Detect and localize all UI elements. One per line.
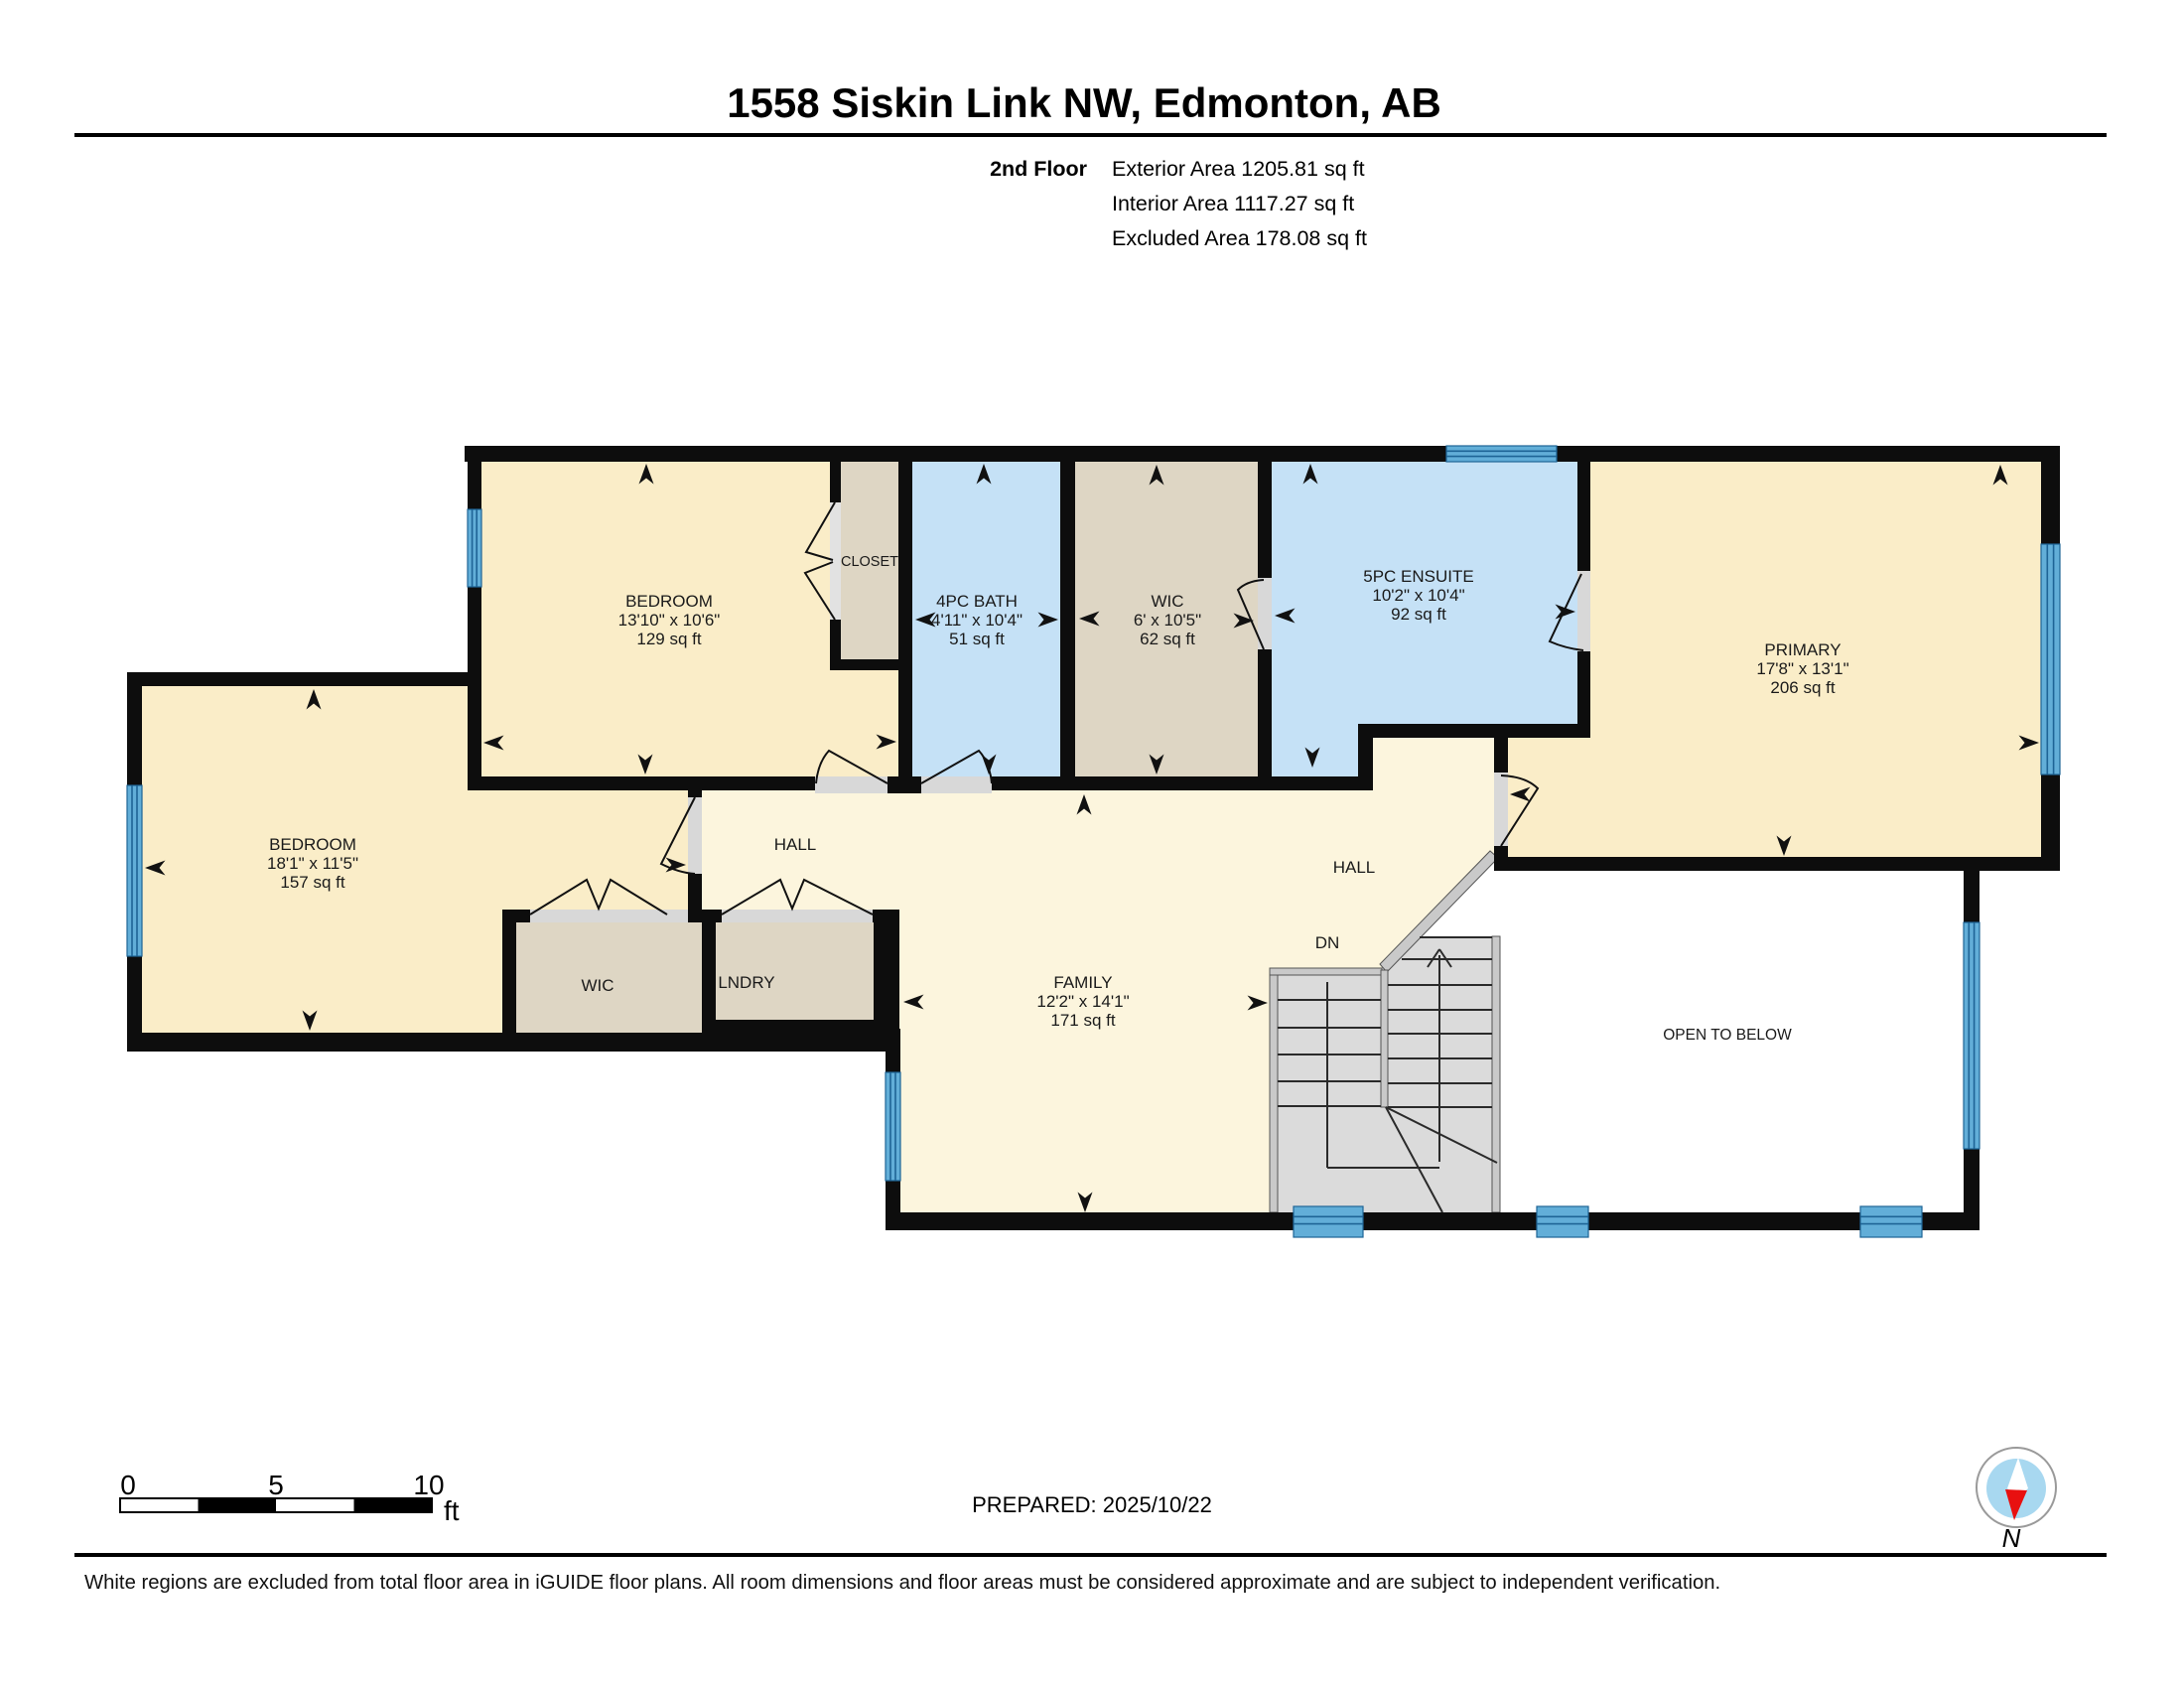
svg-text:HALL: HALL [774,835,817,854]
svg-text:12'2" x 14'1": 12'2" x 14'1" [1036,992,1129,1011]
svg-text:4PC BATH: 4PC BATH [936,592,1018,611]
svg-text:10: 10 [413,1470,444,1500]
svg-text:Exterior Area 1205.81 sq ft: Exterior Area 1205.81 sq ft [1112,157,1365,181]
svg-text:5: 5 [268,1470,284,1500]
svg-text:Interior Area 1117.27 sq ft: Interior Area 1117.27 sq ft [1112,192,1354,215]
svg-text:13'10" x 10'6": 13'10" x 10'6" [618,611,721,630]
svg-text:OPEN TO BELOW: OPEN TO BELOW [1663,1027,1792,1044]
svg-text:BEDROOM: BEDROOM [269,835,356,854]
svg-text:BEDROOM: BEDROOM [625,592,713,611]
svg-text:ft: ft [444,1495,460,1526]
svg-text:PREPARED: 2025/10/22: PREPARED: 2025/10/22 [972,1492,1212,1517]
svg-text:157 sq ft: 157 sq ft [280,873,344,892]
svg-text:DN: DN [1315,933,1340,952]
svg-text:6' x 10'5": 6' x 10'5" [1134,611,1201,630]
svg-text:51 sq ft: 51 sq ft [949,630,1005,648]
svg-text:2nd Floor: 2nd Floor [990,157,1088,181]
svg-text:10'2" x 10'4": 10'2" x 10'4" [1372,586,1464,605]
svg-text:White regions are excluded fro: White regions are excluded from total fl… [84,1572,1720,1594]
svg-text:LNDRY: LNDRY [718,973,774,992]
svg-text:17'8" x 13'1": 17'8" x 13'1" [1756,659,1848,678]
svg-text:Excluded Area 178.08 sq ft: Excluded Area 178.08 sq ft [1112,226,1367,250]
svg-text:0: 0 [120,1470,136,1500]
svg-text:WIC: WIC [581,976,614,995]
svg-text:N: N [2002,1523,2021,1553]
svg-text:PRIMARY: PRIMARY [1764,640,1841,659]
svg-text:FAMILY: FAMILY [1053,973,1112,992]
svg-text:62 sq ft: 62 sq ft [1140,630,1195,648]
svg-text:HALL: HALL [1333,858,1376,877]
svg-text:129 sq ft: 129 sq ft [636,630,701,648]
svg-text:18'1" x 11'5": 18'1" x 11'5" [267,854,358,873]
svg-text:CLOSET: CLOSET [841,554,898,570]
svg-text:92 sq ft: 92 sq ft [1391,605,1446,624]
svg-text:171 sq ft: 171 sq ft [1050,1011,1115,1030]
svg-text:1558 Siskin Link NW, Edmonton,: 1558 Siskin Link NW, Edmonton, AB [727,79,1441,126]
svg-text:5PC ENSUITE: 5PC ENSUITE [1363,567,1473,586]
svg-text:206 sq ft: 206 sq ft [1770,678,1835,697]
svg-text:WIC: WIC [1151,592,1183,611]
svg-text:4'11" x 10'4": 4'11" x 10'4" [931,611,1023,630]
